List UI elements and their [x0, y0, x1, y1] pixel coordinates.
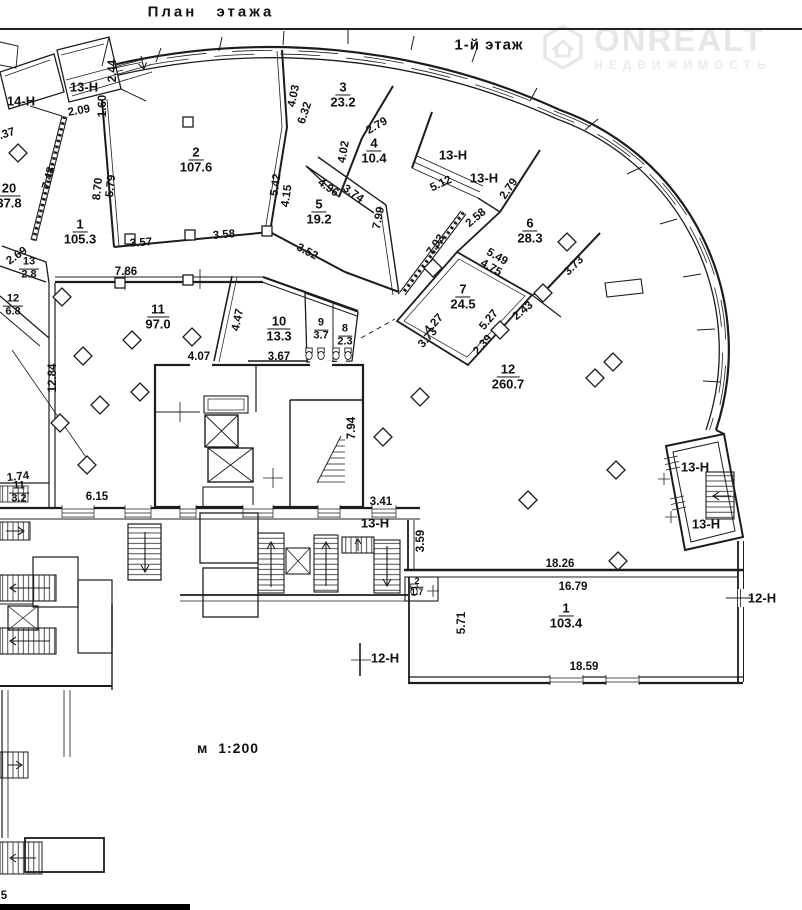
structural-columns	[9, 117, 627, 570]
left-edge-walls	[0, 246, 90, 508]
right-entrance-block	[658, 430, 743, 550]
floor-plan-drawing	[0, 0, 802, 910]
entrance-blocks-top-left	[0, 37, 152, 116]
bottom-edge-bar	[0, 904, 190, 910]
partition-walls-upper	[31, 50, 600, 365]
room1-bottom-right	[404, 541, 753, 685]
marks-and-arrows	[6, 402, 391, 862]
lower-left-wing	[0, 505, 420, 874]
floor-plan-page: ONREALT НЕДВИЖИМОСТЬ	[0, 0, 802, 910]
central-core	[155, 361, 363, 507]
